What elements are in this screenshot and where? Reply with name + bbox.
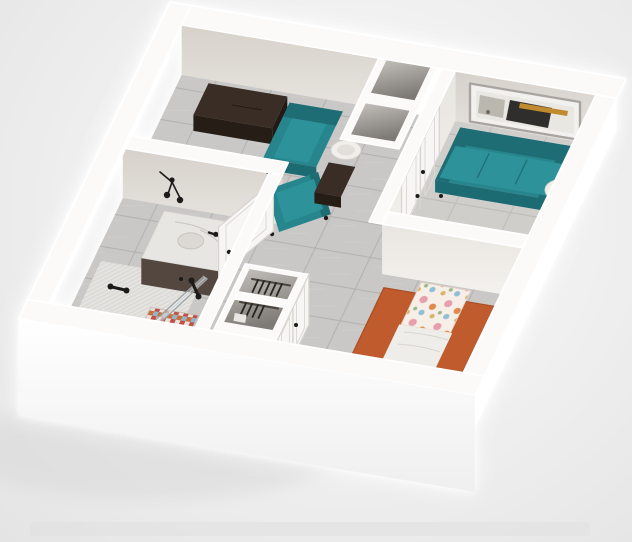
closet-door-handle [421, 170, 425, 174]
floor-plan-svg [0, 0, 632, 542]
cabinet-knob [179, 277, 183, 281]
closet-door-handle [294, 323, 298, 327]
art-dot [486, 110, 490, 114]
closet-door-handle [416, 194, 420, 198]
apartment-unit [19, 2, 626, 492]
bottom-reflection-strip [30, 522, 590, 536]
vanity-sink [178, 233, 204, 249]
floor-plan-stage [0, 0, 632, 542]
